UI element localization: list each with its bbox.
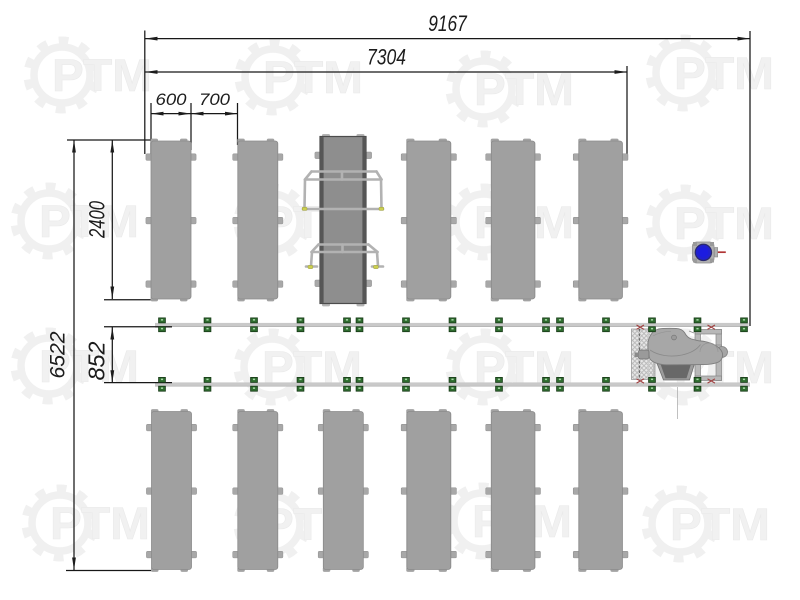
svg-text:7304: 7304	[367, 45, 406, 70]
svg-text:2400: 2400	[85, 200, 110, 238]
svg-text:852: 852	[84, 341, 110, 380]
svg-text:600: 600	[156, 91, 188, 109]
svg-text:700: 700	[199, 91, 231, 109]
svg-text:9167: 9167	[428, 11, 467, 36]
svg-text:6522: 6522	[47, 331, 70, 378]
